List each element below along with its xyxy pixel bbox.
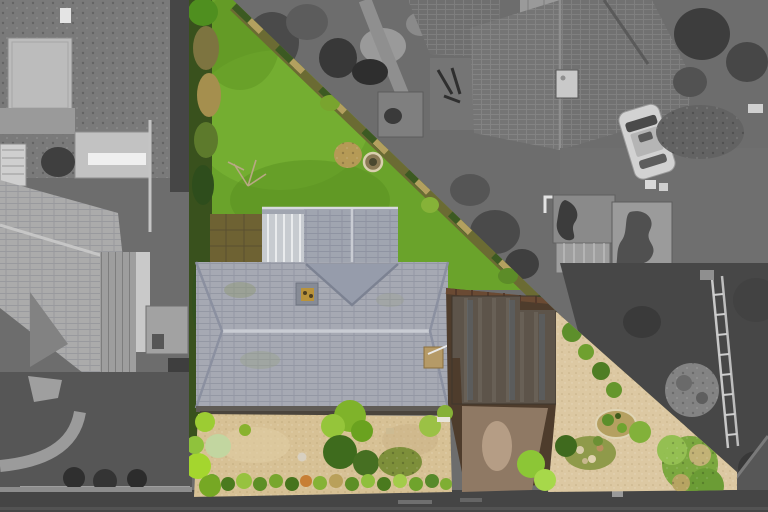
small-bench xyxy=(437,417,450,422)
kerb xyxy=(0,487,192,492)
pond xyxy=(352,59,388,85)
dark-hedge-strip xyxy=(170,0,191,192)
chimney-1 xyxy=(296,283,318,305)
moss-patio xyxy=(210,214,262,264)
flat-garage-roof xyxy=(8,38,72,112)
aerial-photo xyxy=(0,0,768,512)
aerial-photo-canvas xyxy=(0,0,768,512)
rooflight xyxy=(60,8,71,23)
skylight xyxy=(556,70,578,98)
driveway-stain xyxy=(482,421,512,471)
dark-mound xyxy=(323,435,357,469)
tree-shadow xyxy=(41,147,75,177)
birdbath xyxy=(298,453,307,462)
